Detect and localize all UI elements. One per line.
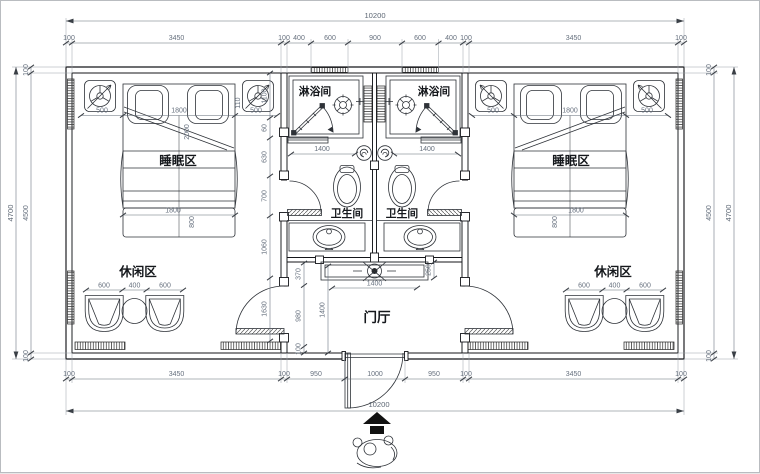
dim-top-9: 3450 [566,35,582,42]
dim-leisure-r-0: 600 [578,283,590,290]
dim-leisure-l-0: 600 [98,283,110,290]
leisure-set-left [83,288,186,332]
dim-top-3: 400 [293,35,305,42]
dim-bed-r-0: 500 [487,108,499,115]
dim-inner-1: 60 [262,124,269,132]
dim-console-width: 1400 [367,281,383,288]
dim-bot-8: 100 [675,371,687,378]
dim-bench-r-1: 800 [552,216,559,228]
dim-shower-left: 1400 [314,146,330,153]
floor-plan-drawing: 10200 100 3450 100 400 600 900 600 400 1… [1,1,760,474]
label-sleep-left: 睡眠区 [159,153,197,168]
dim-top-10: 100 [675,35,687,42]
dim-top-7: 400 [445,35,457,42]
windows-and-radiators [68,68,683,350]
dim-leisure-r-1: 400 [609,283,621,290]
dim-top-2: 100 [278,35,290,42]
dim-shower-right: 1400 [419,146,435,153]
radiator-bottom-4 [624,342,674,350]
person-figure [353,436,397,468]
entrance-arrow-icon [363,412,391,424]
dim-bot-5: 950 [428,371,440,378]
dim-bot-3: 950 [310,371,322,378]
top-vent-left [311,68,348,73]
dim-console-depth: 250 [426,264,433,276]
dim-top-1: 3450 [169,35,185,42]
dim-top-8: 100 [460,35,472,42]
entrance-marker [363,412,391,434]
dim-bot-7: 3450 [566,371,582,378]
radiator-left-bottom [68,271,75,324]
label-shower-left: 淋浴间 [299,84,332,98]
dim-hall-depth: 1400 [320,302,327,318]
dim-inner-2: 630 [262,151,269,163]
dim-right-1: 4500 [706,205,713,221]
dim-bench-r-0: 1800 [568,208,584,215]
radiator-bottom-1 [75,342,125,350]
label-shower-right: 淋浴间 [418,84,451,98]
dim-bottom-total: 10200 [368,400,389,409]
top-vent-right [402,68,439,73]
dim-right-2: 100 [706,350,713,362]
leisure-set-right [563,288,666,332]
dim-bed-length: 2000 [184,124,191,140]
dim-inner-0: 1100 [262,88,269,103]
dim-top-total: 10200 [364,11,385,20]
dim-left-2: 100 [23,350,30,362]
dim-top-6: 600 [414,35,426,42]
dim-top-4: 600 [324,35,336,42]
entrance-opening [342,352,408,361]
room-labels: 睡眠区 睡眠区 休闲区 休闲区 淋浴间 淋浴间 卫生间 卫生间 门厅 [118,84,632,325]
bathroom-suite-right [377,76,463,251]
dim-bench-l-1: 800 [189,216,196,228]
center-wall-hatch [364,86,385,122]
label-leisure-right: 休闲区 [593,264,632,279]
dim-bot-2: 100 [278,371,290,378]
dim-bot-0: 100 [63,371,75,378]
dim-bed-l-1: 1800 [171,108,187,115]
floor-plan-canvas: 10200 100 3450 100 400 600 900 600 400 1… [0,0,760,473]
bedroom-door-right [465,286,513,334]
label-leisure-left: 休闲区 [118,264,157,279]
dim-bot-4: 1000 [367,371,383,378]
label-sleep-right: 睡眠区 [552,153,590,168]
radiator-left-top [68,79,75,129]
dim-bot-6: 100 [460,371,472,378]
dim-right-total: 4700 [724,205,733,222]
dim-top-0: 100 [63,35,75,42]
bathroom-suite-left [287,76,373,251]
dim-hall-0: 370 [296,268,303,280]
dim-right-0: 100 [706,64,713,76]
dim-hall-1: 980 [296,310,303,322]
dim-top-5: 900 [369,35,381,42]
bedroom-door-left [236,286,284,334]
dim-bot-1: 3450 [169,371,185,378]
dim-bed-l-0: 500 [96,108,108,115]
radiator-bottom-3 [468,342,528,350]
dim-bed-side: 110 [235,97,242,108]
radiator-right-top [676,79,683,129]
dim-left-0: 100 [23,64,30,76]
dim-bed-l-2: 500 [250,108,262,115]
dim-hall-2: 100 [296,343,303,355]
hall-console [321,262,428,281]
dim-bed-r-1: 1800 [562,108,578,115]
label-wc-left: 卫生间 [331,206,364,220]
dim-leisure-r-2: 600 [639,283,651,290]
radiator-bottom-2 [221,342,281,350]
radiator-right-bottom [676,271,683,324]
label-hall: 门厅 [364,309,391,325]
dim-bed-r-2: 500 [641,108,653,115]
dim-left-1: 4500 [23,205,30,221]
dim-inner-4: 1060 [262,239,269,255]
dim-left-total: 4700 [6,205,15,222]
dim-inner-3: 700 [262,190,269,202]
dim-leisure-l-2: 600 [159,283,171,290]
dim-inner-5: 1630 [262,301,269,317]
dim-bench-l-0: 1800 [165,208,181,215]
dim-leisure-l-1: 400 [129,283,141,290]
label-wc-right: 卫生间 [386,206,419,220]
